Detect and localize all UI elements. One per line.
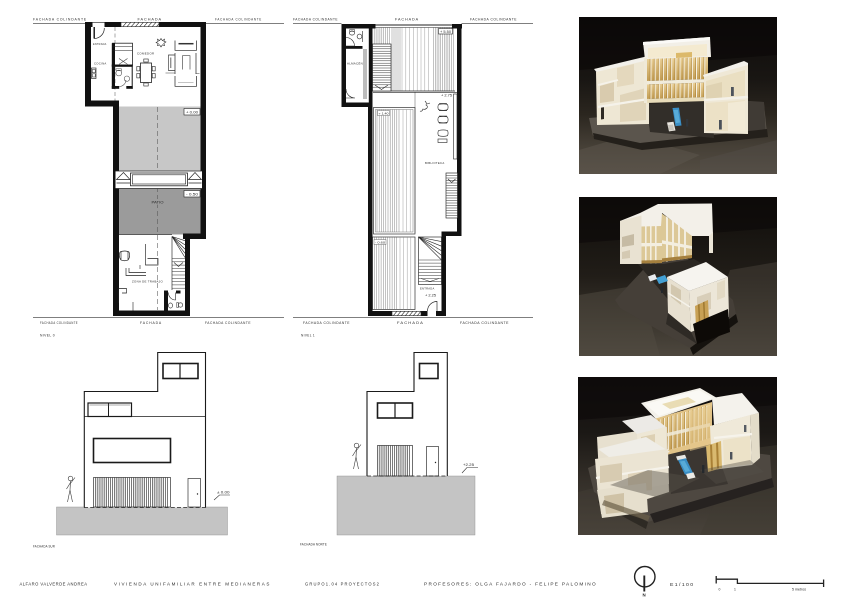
svg-text:- 0.50: - 0.50 (186, 192, 198, 196)
svg-text:FACHADA COLINDANTE: FACHADA COLINDANTE (470, 18, 517, 22)
svg-text:- 0.60: - 0.60 (375, 240, 385, 244)
svg-text:E1/100: E1/100 (670, 582, 695, 587)
svg-text:FACHADA: FACHADA (140, 321, 162, 325)
svg-text:COMEDOR: COMEDOR (137, 52, 155, 56)
svg-text:+ 1.40: + 1.40 (379, 111, 389, 115)
svg-text:VIVIENDA UNIFAMILIAR ENTRE MED: VIVIENDA UNIFAMILIAR ENTRE MEDIANERAS (114, 582, 271, 587)
svg-text:FACHADA: FACHADA (395, 18, 419, 22)
svg-text:FACHADA: FACHADA (397, 321, 424, 325)
svg-text:+ 5.50: + 5.50 (440, 30, 451, 34)
svg-text:FACHADA COLINDANTE: FACHADA COLINDANTE (40, 321, 78, 325)
svg-text:± 0.00: ± 0.00 (217, 491, 230, 495)
svg-text:N: N (643, 593, 646, 598)
svg-text:PROFESORES: OLGA FAJARDO - FEL: PROFESORES: OLGA FAJARDO - FELIPE PALOMI… (424, 582, 597, 587)
svg-text:COCINA: COCINA (94, 62, 107, 66)
svg-text:+ 0.00: + 0.00 (186, 110, 198, 114)
svg-text:FACHADA SUR: FACHADA SUR (33, 545, 55, 549)
svg-text:ZONA DE TRABAJO: ZONA DE TRABAJO (132, 280, 163, 284)
svg-text:ENTRADA: ENTRADA (420, 287, 435, 291)
svg-text:ALFARO VALVERDE ANDREA: ALFARO VALVERDE ANDREA (20, 582, 88, 587)
svg-text:FACHADA: FACHADA (138, 18, 163, 22)
svg-text:1: 1 (734, 588, 736, 592)
svg-text:0: 0 (719, 588, 721, 592)
svg-text:FACHADA NORTE: FACHADA NORTE (300, 543, 327, 547)
svg-text:FACHADA COLINDANTE: FACHADA COLINDANTE (205, 321, 251, 325)
svg-text:FACHADA COLINDANTE: FACHADA COLINDANTE (215, 18, 262, 22)
svg-text:5 metros: 5 metros (792, 588, 806, 592)
svg-text:FACHADA COLINDANTE: FACHADA COLINDANTE (33, 18, 87, 22)
svg-text:NIVEL 1: NIVEL 1 (301, 334, 315, 338)
svg-text:NIVEL 0: NIVEL 0 (40, 334, 55, 338)
svg-text:FACHADA COLINDANTE: FACHADA COLINDANTE (460, 321, 509, 325)
svg-text:ALMACÉN: ALMACÉN (347, 61, 363, 66)
svg-text:ENTRADA: ENTRADA (93, 42, 107, 46)
svg-text:FACHADA COLINDANTE: FACHADA COLINDANTE (303, 321, 350, 325)
svg-text:+ 2.75: + 2.75 (441, 94, 452, 98)
svg-text:GRUPO1.04 PROYECTOS2: GRUPO1.04 PROYECTOS2 (305, 582, 380, 587)
svg-text:+ 2.25: + 2.25 (425, 294, 436, 298)
svg-text:FACHADA COLINDANTE: FACHADA COLINDANTE (293, 18, 338, 22)
svg-text:+2.25: +2.25 (463, 463, 474, 467)
svg-text:PATIO: PATIO (152, 201, 165, 205)
svg-text:BIBLIOTECA: BIBLIOTECA (425, 161, 445, 165)
